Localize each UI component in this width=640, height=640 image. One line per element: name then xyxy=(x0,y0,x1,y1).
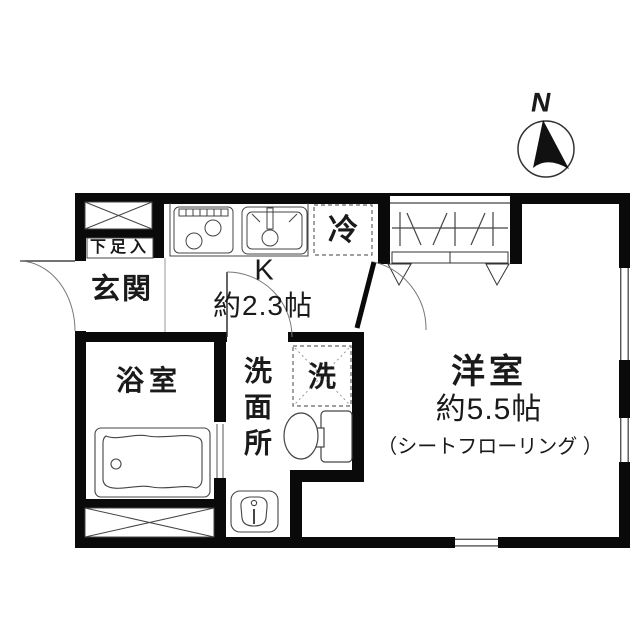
window-right-lower xyxy=(620,418,629,462)
bathroom-door xyxy=(217,424,223,478)
floor-plan: 下足入 玄関 K 約2.3帖 冷 浴室 洗面所 洗 洋室 約5.5帖 （シートフ… xyxy=(0,0,640,640)
laundry-label: 洗 xyxy=(308,363,336,391)
western-room-flooring-label: （シートフローリング ） xyxy=(377,437,603,457)
bathroom-label: 浴室 xyxy=(116,367,182,395)
kitchen-sink-icon xyxy=(242,207,307,254)
toilet-icon xyxy=(284,411,352,462)
washbasin-icon xyxy=(231,491,278,532)
crossed-box-icon xyxy=(85,508,214,537)
refrigerator-label: 冷 xyxy=(328,216,358,246)
window-bottom xyxy=(455,539,498,547)
bathtub-icon xyxy=(95,428,210,497)
entrance-door xyxy=(20,261,75,331)
closet-hanger-icon xyxy=(390,203,510,246)
western-room-door xyxy=(357,262,426,330)
shoe-storage-label: 下足入 xyxy=(90,240,150,256)
window-right-upper xyxy=(620,268,629,360)
entrance-label: 玄関 xyxy=(91,276,153,305)
western-room-label: 洋室 xyxy=(451,355,527,389)
washroom-label: 洗面所 xyxy=(242,356,270,464)
kitchen-size-label: 約2.3帖 xyxy=(213,292,313,320)
crossed-box-icon xyxy=(85,202,152,229)
north-compass-icon xyxy=(518,120,574,177)
western-room-size-label: 約5.5帖 xyxy=(436,395,543,425)
kitchen-label: K xyxy=(254,257,273,286)
gas-stove-icon xyxy=(174,207,233,253)
